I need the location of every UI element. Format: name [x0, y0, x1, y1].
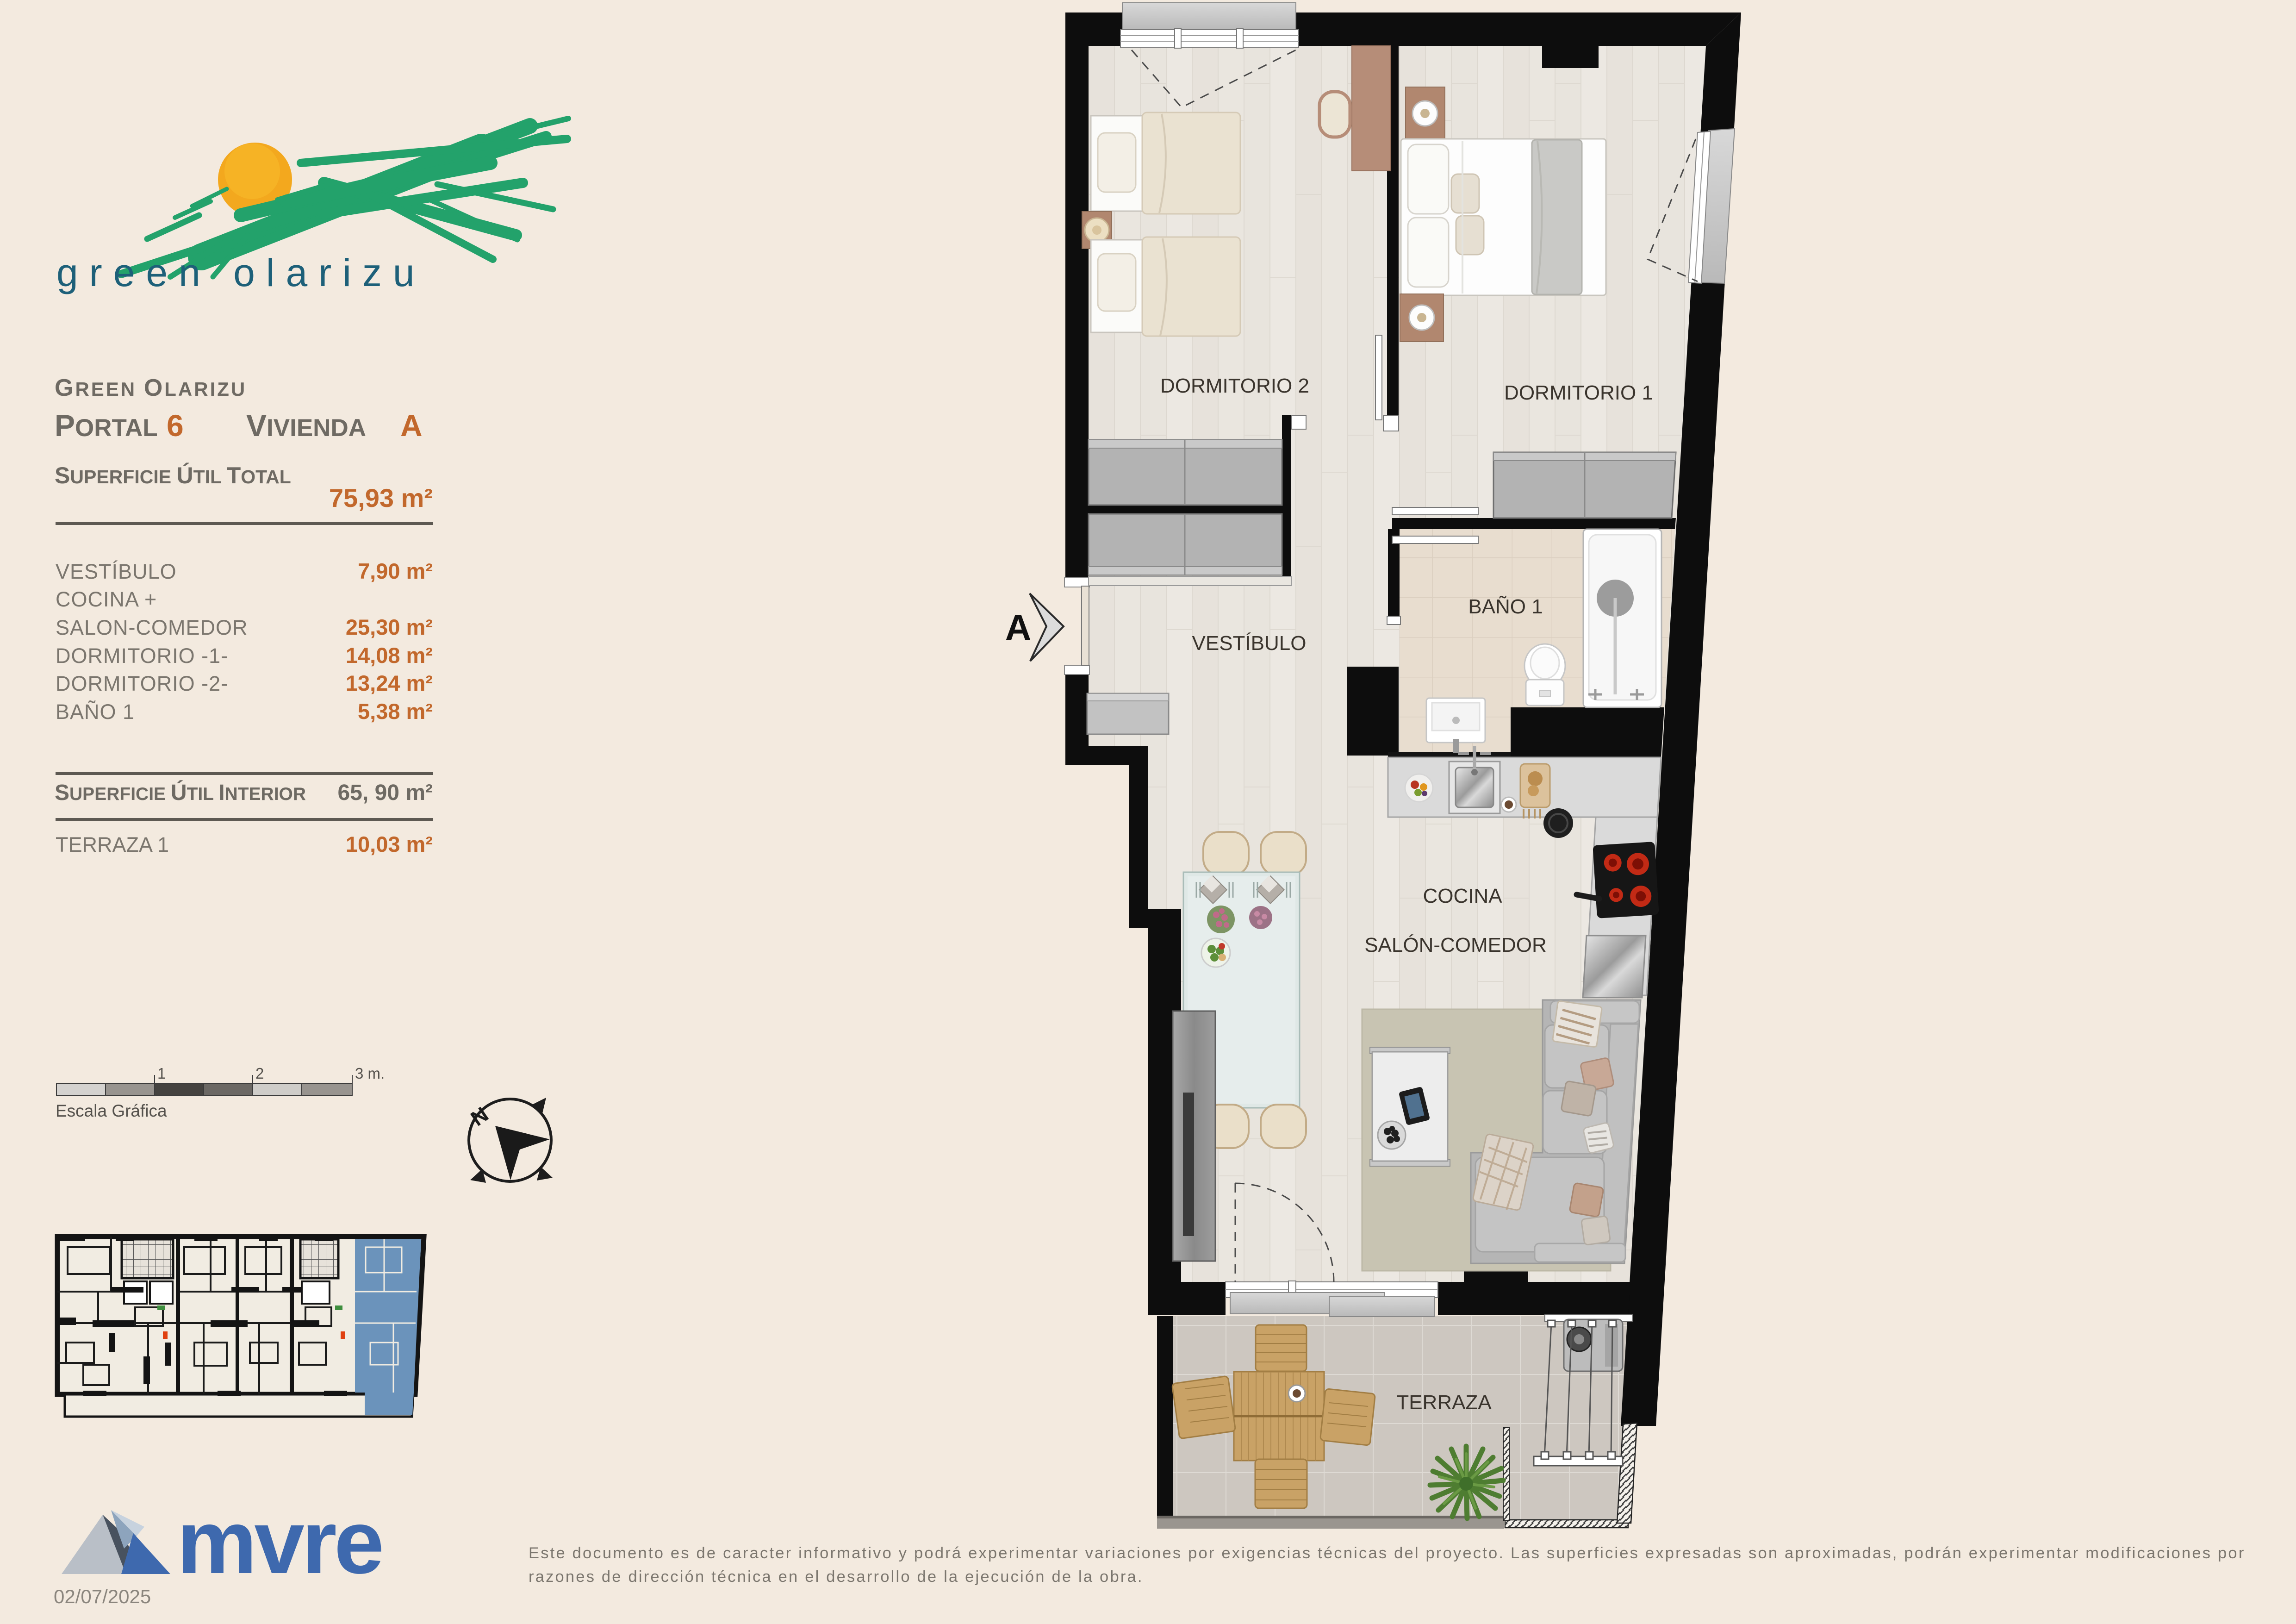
svg-text:TERRAZA: TERRAZA [1396, 1391, 1492, 1414]
svg-text:VESTÍBULO: VESTÍBULO [1192, 632, 1307, 655]
svg-text:mvre: mvre [177, 1492, 381, 1593]
svg-text:DORMITORIO -2-: DORMITORIO -2- [56, 672, 228, 695]
svg-text:65, 90 m²: 65, 90 m² [338, 781, 433, 805]
svg-text:TERRAZA 1: TERRAZA 1 [56, 833, 169, 856]
svg-text:GREEN OLARIZU: GREEN OLARIZU [55, 375, 247, 401]
svg-text:SALÓN-COMEDOR: SALÓN-COMEDOR [1364, 934, 1547, 956]
svg-text:COCINA +: COCINA + [56, 587, 157, 611]
svg-text:COCINA: COCINA [1423, 885, 1502, 907]
svg-text:razones de dirección técnica e: razones de dirección técnica en el desar… [529, 1568, 1144, 1586]
svg-text:1: 1 [157, 1065, 166, 1082]
svg-text:13,24 m²: 13,24 m² [346, 671, 433, 695]
svg-text:DORMITORIO 2: DORMITORIO 2 [1160, 375, 1309, 397]
svg-text:SUPERFICIE ÚTIL TOTAL: SUPERFICIE ÚTIL TOTAL [55, 462, 291, 488]
svg-text:Este documento es de caracter: Este documento es de caracter informativ… [529, 1544, 2246, 1562]
svg-text:75,93 m²: 75,93 m² [329, 483, 433, 512]
svg-text:Escala Gráfica: Escala Gráfica [56, 1101, 167, 1120]
svg-text:A: A [1005, 607, 1031, 648]
svg-text:BAÑO 1: BAÑO 1 [56, 700, 135, 724]
svg-text:6: 6 [167, 408, 184, 443]
svg-text:10,03 m²: 10,03 m² [346, 832, 433, 856]
svg-text:14,08 m²: 14,08 m² [346, 643, 433, 668]
svg-text:SALON-COMEDOR: SALON-COMEDOR [56, 616, 248, 639]
svg-text:02/07/2025: 02/07/2025 [54, 1586, 151, 1607]
svg-text:VESTÍBULO: VESTÍBULO [56, 560, 177, 583]
svg-text:DORMITORIO -1-: DORMITORIO -1- [56, 644, 228, 668]
svg-text:2: 2 [255, 1065, 264, 1082]
svg-text:3 m.: 3 m. [355, 1065, 385, 1082]
svg-text:25,30 m²: 25,30 m² [346, 615, 433, 639]
svg-text:BAÑO 1: BAÑO 1 [1468, 595, 1543, 618]
svg-text:A: A [400, 408, 423, 443]
svg-text:7,90 m²: 7,90 m² [358, 559, 433, 583]
svg-text:DORMITORIO 1: DORMITORIO 1 [1504, 381, 1653, 404]
svg-text:green olarizu: green olarizu [56, 251, 426, 294]
svg-text:5,38 m²: 5,38 m² [358, 699, 433, 724]
